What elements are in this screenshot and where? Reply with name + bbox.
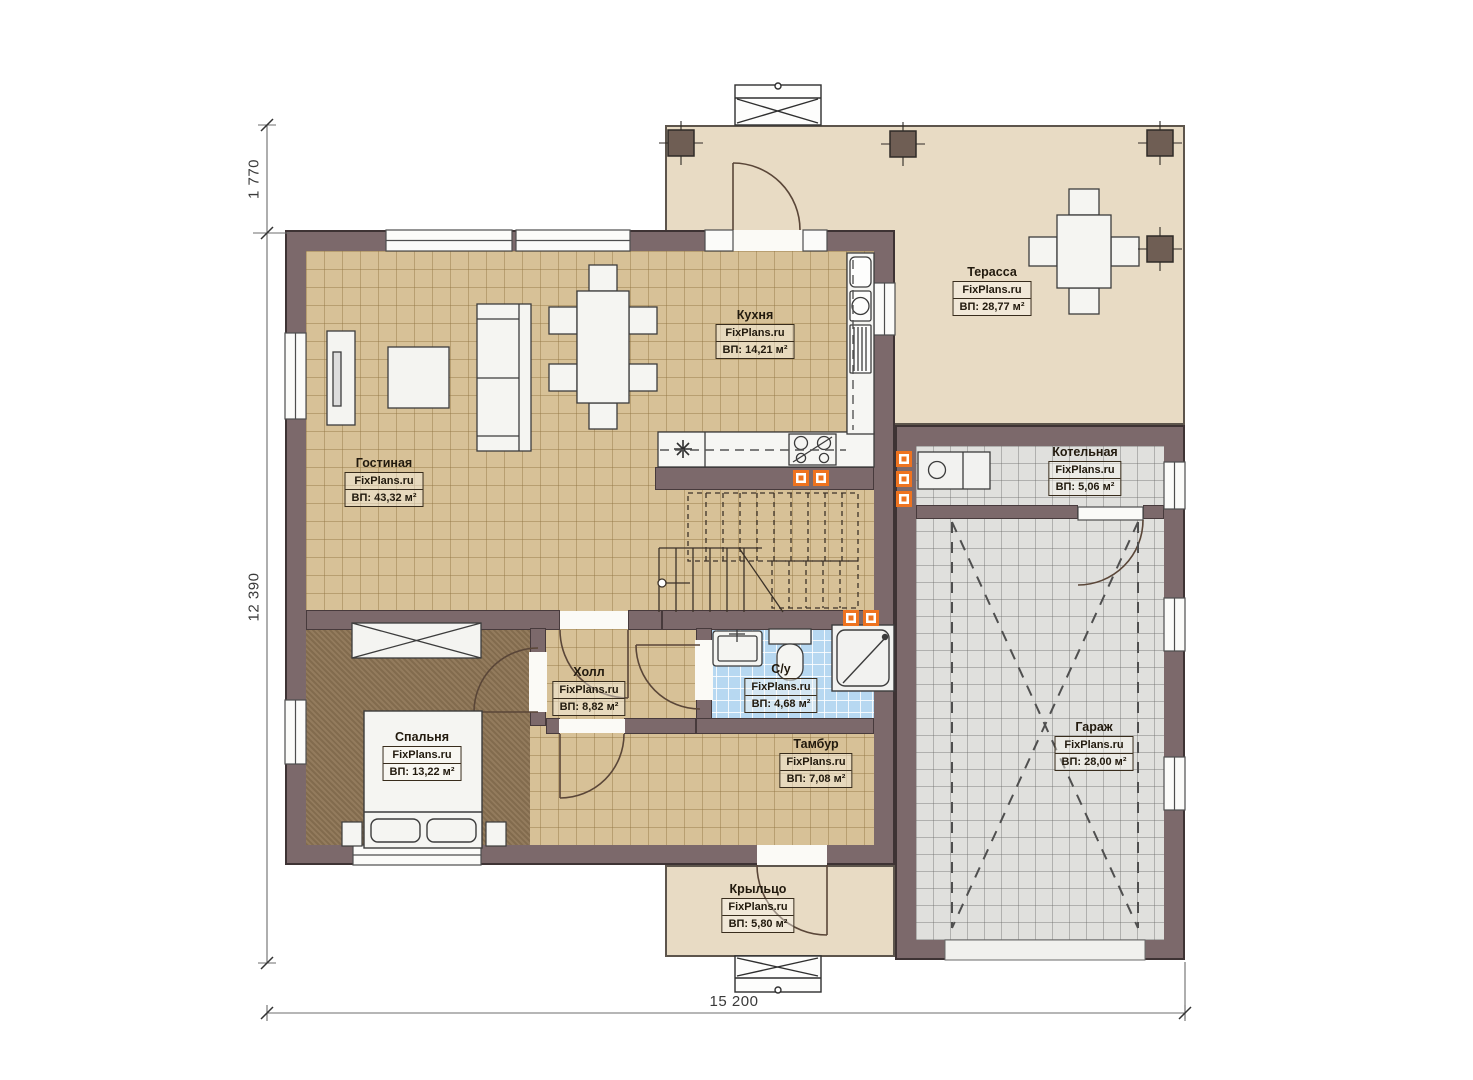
brand-watermark: FixPlans.ru xyxy=(780,754,851,770)
brand-watermark: FixPlans.ru xyxy=(722,899,793,915)
tv-stand-icon xyxy=(327,331,355,425)
coffee-table-icon xyxy=(388,347,449,408)
boiler-unit-icon xyxy=(918,452,990,489)
bathroom-sink-icon xyxy=(713,629,762,666)
room-name: Терасса xyxy=(953,265,1032,279)
door-hall-bedroom xyxy=(474,648,538,712)
brand-watermark: FixPlans.ru xyxy=(384,747,461,763)
sofa-icon xyxy=(477,304,531,451)
room-label-bathroom: С/у FixPlans.ruВП: 4,68 м² xyxy=(744,662,817,713)
door-boiler-garage xyxy=(1078,507,1143,585)
stairs-lower-flight xyxy=(658,548,783,612)
room-area: ВП: 7,08 м² xyxy=(780,770,851,787)
dimension-house-width: 15 200 xyxy=(710,993,759,1010)
brand-watermark: FixPlans.ru xyxy=(553,682,624,698)
room-name: Котельная xyxy=(1048,445,1121,459)
room-name: Гараж xyxy=(1055,720,1134,734)
room-label-boiler: Котельная FixPlans.ruВП: 5,06 м² xyxy=(1048,445,1121,496)
terrace-steps-icon xyxy=(735,83,821,125)
brand-watermark: FixPlans.ru xyxy=(717,325,794,341)
dimension-terrace-depth: 1 770 xyxy=(246,159,263,199)
garage-gate xyxy=(945,940,1145,960)
terrace-table-icon xyxy=(1029,189,1139,314)
brand-watermark: FixPlans.ru xyxy=(1056,737,1133,753)
room-label-porch: Крыльцо FixPlans.ruВП: 5,80 м² xyxy=(721,882,794,933)
wardrobe-icon xyxy=(352,623,481,658)
dimension-house-height: 12 390 xyxy=(246,573,263,622)
shower-icon xyxy=(832,625,894,691)
brand-watermark: FixPlans.ru xyxy=(954,282,1031,298)
brand-watermark: FixPlans.ru xyxy=(346,473,423,489)
stairs xyxy=(658,493,858,612)
floor-plan: Гостиная FixPlans.ruВП: 43,32 м² Кухня F… xyxy=(0,0,1473,1080)
kitchen-counter xyxy=(658,253,874,467)
door-hall-vestibule xyxy=(560,734,624,798)
room-label-kitchen: Кухня FixPlans.ruВП: 14,21 м² xyxy=(716,308,795,359)
room-label-vestibule: Тамбур FixPlans.ruВП: 7,08 м² xyxy=(779,737,852,788)
dining-set-icon xyxy=(549,265,657,429)
socket-icons xyxy=(795,453,911,625)
stairs-upper-flight xyxy=(688,493,858,608)
room-name: Холл xyxy=(552,665,625,679)
brand-watermark: FixPlans.ru xyxy=(745,679,816,695)
room-label-bedroom: Спальня FixPlans.ruВП: 13,22 м² xyxy=(383,730,462,781)
room-area: ВП: 28,00 м² xyxy=(1056,753,1133,770)
room-area: ВП: 8,82 м² xyxy=(553,698,624,715)
room-name: Тамбур xyxy=(779,737,852,751)
room-area: ВП: 5,80 м² xyxy=(722,915,793,932)
room-name: Спальня xyxy=(383,730,462,744)
room-label-terrace: Терасса FixPlans.ruВП: 28,77 м² xyxy=(953,265,1032,316)
room-name: С/у xyxy=(744,662,817,676)
room-name: Кухня xyxy=(716,308,795,322)
door-hall-bathroom xyxy=(636,645,700,709)
room-label-living: Гостиная FixPlans.ruВП: 43,32 м² xyxy=(345,456,424,507)
room-area: ВП: 13,22 м² xyxy=(384,763,461,780)
room-area: ВП: 5,06 м² xyxy=(1049,478,1120,495)
room-label-hall: Холл FixPlans.ruВП: 8,82 м² xyxy=(552,665,625,716)
room-name: Крыльцо xyxy=(721,882,794,896)
room-name: Гостиная xyxy=(345,456,424,470)
door-kitchen-terrace xyxy=(733,163,800,230)
room-area: ВП: 14,21 м² xyxy=(717,341,794,358)
room-label-garage: Гараж FixPlans.ruВП: 28,00 м² xyxy=(1055,720,1134,771)
room-area: ВП: 4,68 м² xyxy=(745,695,816,712)
room-area: ВП: 28,77 м² xyxy=(954,298,1031,315)
room-area: ВП: 43,32 м² xyxy=(346,489,423,506)
porch-steps-icon xyxy=(735,956,821,993)
brand-watermark: FixPlans.ru xyxy=(1049,462,1120,478)
